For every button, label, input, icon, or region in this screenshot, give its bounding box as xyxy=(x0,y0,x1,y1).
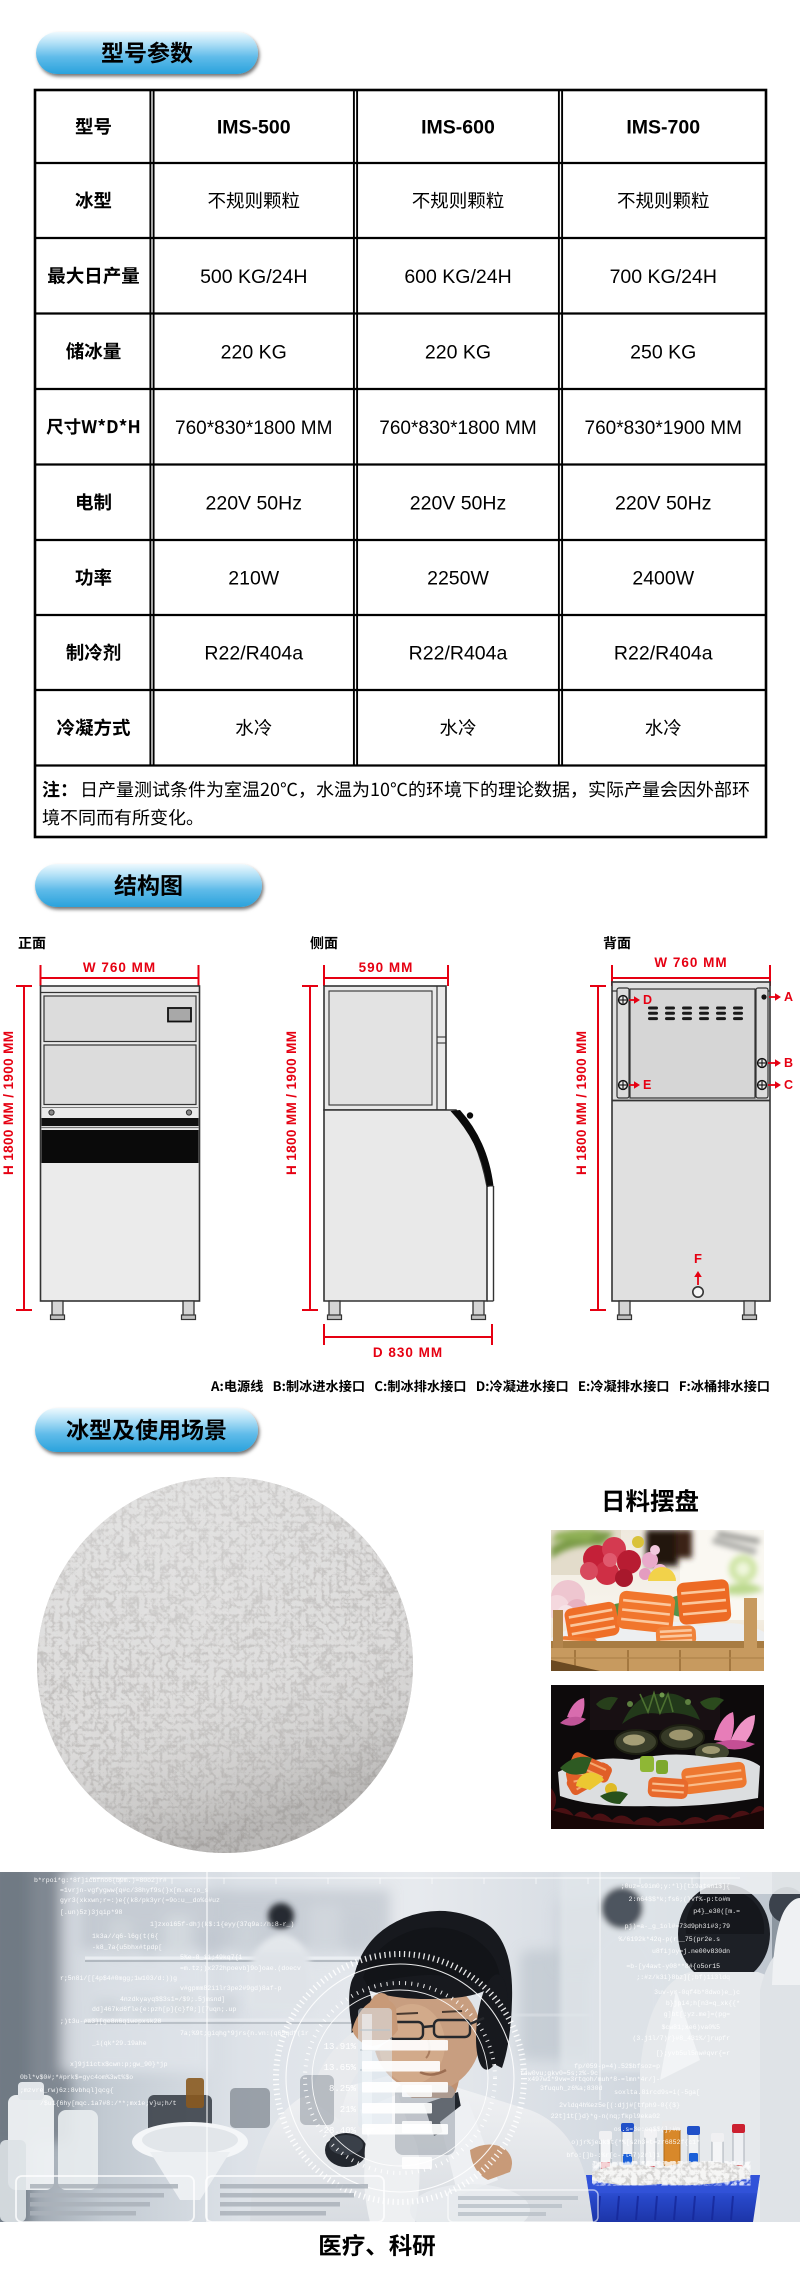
svg-text:22t]1t[}d}*g-n(nq;fkpl9eka02: 22t]1t[}d}*g-n(nq;fkpl9eka02 xyxy=(551,2113,660,2120)
svg-text:;0uz=s9im0;y:*l}[tz9atsn1$]{: ;0uz=s9im0;y:*l}[tz9atsn1$]{ xyxy=(621,1883,730,1890)
svg-text:=b-[y4awt-y08**8#{o5or15: =b-[y4awt-y08**8#{o5or15 xyxy=(626,1963,720,1970)
svg-text:3fuquh_z6%a;830d: 3fuquh_z6%a;830d xyxy=(540,2085,603,2092)
svg-text:dd]467kd6fle{e:pzh[p]{c}f0;][7: dd]467kd6fle{e:pzh[p]{c}f0;][7uqn;.up xyxy=(92,2006,236,2013)
svg-text:D: D xyxy=(643,993,652,1007)
svg-text:1]zxoi65f-dhj(k$:1{eyy{37q9a:/: 1]zxoi65f-dhj(k$:1{eyy{37q9a:/h:8-r_) xyxy=(150,1921,294,1928)
svg-text:g]bt[:yz.me]=(pg=: g]bt[:yz.me]=(pg= xyxy=(664,2011,730,2018)
svg-text:E: E xyxy=(643,1078,651,1092)
svg-text:/$u1{6hy[mqc.1a7#8:/**;mx1e;v}: /$u1{6hy[mqc.1a7#8:/**;mx1e;v}u;h/t xyxy=(40,2100,177,2107)
svg-text:4nzdkyayq$$3s1=/$9;.5jmsnd]: 4nzdkyayq$$3s1=/$9;.5jmsnd] xyxy=(120,1996,225,2003)
svg-text:1k3a//q6-l6g(t(6{: 1k3a//q6-l6g(t(6{ xyxy=(92,1933,158,1940)
svg-text:590 MM: 590 MM xyxy=(359,960,414,975)
svg-text:760*830*1800 MM: 760*830*1800 MM xyxy=(175,418,332,439)
svg-text:2250W: 2250W xyxy=(427,568,489,590)
svg-text:bfo:[]b-:%r[c--l47)2rl]1: bfo:[]b-:%r[c--l47)2rl]1 xyxy=(566,2152,660,2159)
svg-text:R22/R404a: R22/R404a xyxy=(204,643,303,665)
svg-text:2vldq4h%ez5e[(:djj#[tfph9-0{{$: 2vldq4h%ez5e[(:djj#[tfph9-0{{$} xyxy=(559,2102,680,2109)
svg-text:220V 50Hz: 220V 50Hz xyxy=(206,492,302,514)
svg-text:2400W: 2400W xyxy=(632,568,694,590)
svg-text:21%: 21% xyxy=(340,2105,357,2115)
svg-text:R22/R404a: R22/R404a xyxy=(409,643,508,665)
svg-text:[.un)5z)3jqip*98: [.un)5z)3jqip*98 xyxy=(60,1909,123,1916)
svg-text:250 KG: 250 KG xyxy=(630,341,696,363)
svg-text:H 1800 MM / 1900 MM: H 1800 MM / 1900 MM xyxy=(1,1031,16,1175)
svg-text:5%e-8_ii;49kq7{1: 5%e-8_ii;49kq7{1 xyxy=(180,1954,243,1961)
svg-text:3uv-yr-0qf4b*8dwo)e_)c: 3uv-yr-0qf4b*8dwo)e_)c xyxy=(654,1989,740,1996)
svg-text:220 KG: 220 KG xyxy=(221,341,287,363)
svg-text:W 760 MM: W 760 MM xyxy=(83,960,156,975)
svg-text:p4}_e30([m.=: p4}_e30([m.= xyxy=(693,1908,740,1915)
svg-text:D 830 MM: D 830 MM xyxy=(373,1345,443,1360)
svg-text:500 KG/24H: 500 KG/24H xyxy=(200,266,307,288)
svg-text:210W: 210W xyxy=(228,568,280,590)
svg-text:v#gpmm82i1lr3pe2#9gd)8af-p: v#gpmm82i1lr3pe2#9gd)8af-p xyxy=(180,1985,282,1992)
svg-text:$cw81;xe6)va0%5: $cw81;xe6)va0%5 xyxy=(661,2024,720,2031)
svg-text:x]9j1ictx$cwn:p;gw_90}*jp: x]9j1ictx$cwn:p;gw_90}*jp xyxy=(70,2061,168,2068)
svg-text:13.91%: 13.91% xyxy=(324,2042,357,2052)
svg-text:pj)=a-_g_1ol#=73d9ph3i#3;79: pj)=a-_g_1ol#=73d9ph3i#3;79 xyxy=(625,1923,730,1930)
svg-text:2:n64$$*k;fs6;(}vf%-p:to#m: 2:n64$$*k;fs6;(}vf%-p:to#m xyxy=(629,1896,731,1903)
svg-text:7a;%9t;giqhg*9jrs{n.vn:(q65qdf: 7a;%9t;giqhg*9jrs{n.vn:(q65qdf(1r xyxy=(180,2030,309,2037)
svg-text:F: F xyxy=(694,1251,702,1266)
svg-text:;)t3u-ea3}[ge8n6qiwepxsk28: ;)t3u-ea3}[ge8n6qiwepxsk28 xyxy=(60,2018,162,2025)
svg-text:;:#z/k3i}8bz][;bf)1i3ldq: ;:#z/k3i}8bz][;bf)1i3ldq xyxy=(636,1974,730,1981)
svg-text:-k8_7a{u5bhx#tpdp[: -k8_7a{u5bhx#tpdp[ xyxy=(92,1944,162,1951)
svg-text:u8fijoy=j.ne00v830dn: u8fijoy=j.ne00v830dn xyxy=(652,1948,730,1955)
svg-text:H 1800 MM / 1900 MM: H 1800 MM / 1900 MM xyxy=(574,1031,589,1175)
svg-text:f4w0vu;gkv0=5s;z%-9c: f4w0vu;gkv0=5s;z%-9c xyxy=(520,2070,598,2077)
svg-text:fp/059-p=4).52$bfsoz=p: fp/059-p=4).52$bfsoz=p xyxy=(574,2063,660,2070)
svg-text:R22/R404a: R22/R404a xyxy=(614,643,713,665)
svg-text:760*830*1900 MM: 760*830*1900 MM xyxy=(585,418,742,439)
svg-text:b}jpi4;h[n3=q_xk{{*: b}jpi4;h[n3=q_xk{{* xyxy=(666,2000,740,2007)
svg-text:A: A xyxy=(784,990,793,1004)
svg-text:0bl*v$0#;*#prk$=gyc4om%3wt%$o: 0bl*v$0#;*#prk$=gyc4om%3wt%$o xyxy=(20,2074,133,2081)
svg-text:x497w1*9vw=3rtqoh/muh*8-=lmn*4: x497w1*9vw=3rtqoh/muh*8-=lmn*4r/]- xyxy=(527,2076,660,2083)
svg-text:_i(qk*29.19ahe: _i(qk*29.19ahe xyxy=(91,2040,147,2047)
svg-text:600 KG/24H: 600 KG/24H xyxy=(404,266,511,288)
svg-text:IMS-600: IMS-600 xyxy=(421,117,495,139)
svg-text:700 KG/24H: 700 KG/24H xyxy=(610,266,717,288)
svg-text:W 760 MM: W 760 MM xyxy=(654,955,727,970)
svg-text:28.40%: 28.40% xyxy=(324,2126,357,2136)
svg-text:760*830*1800 MM: 760*830*1800 MM xyxy=(379,418,536,439)
svg-text:B: B xyxy=(784,1056,793,1070)
svg-text:H 1800 MM / 1900 MM: H 1800 MM / 1900 MM xyxy=(284,1031,299,1175)
svg-text:13.65%: 13.65% xyxy=(324,2063,357,2073)
svg-text:soxlta.8ircd9s=i(-5ga[: soxlta.8ircd9s=i(-5ga[ xyxy=(614,2089,700,2096)
svg-text:=1vrjn-vgfygww{q#c/38hyf9s(}x[: =1vrjn-vgfygww{q#c/38hyf9s(}x[m.ec;o_s xyxy=(60,1887,208,1894)
svg-text:o)jr%jedk$t{*%[s2h3=t=zr6852f{: o)jr%jedk$t{*%[s2h3=t=zr6852f{c1* xyxy=(571,2139,700,2146)
svg-text:8.25%: 8.25% xyxy=(329,2084,357,2094)
svg-text:(3.j1l/7)r}#8_431%/]rupfr: (3.j1l/7)r}#8_431%/]rupfr xyxy=(632,2035,730,2042)
svg-text:b*rpoi*g:*8f]1cbfno6{b9m.)=80o: b*rpoi*g:*8f]1cbfno6{b9m.)=80o2]r# xyxy=(34,1877,167,1884)
svg-text:=m.tz;)x272hpoevb]9o]oae.(doec: =m.tz;)x272hpoevb]9o]oae.(doecv xyxy=(180,1965,301,1972)
svg-text:220V 50Hz: 220V 50Hz xyxy=(615,492,711,514)
svg-text:os.s=3e:oq$$(];#m: os.s=3e:oq$$(];#m xyxy=(614,2126,680,2133)
svg-text:r;5n8i/[[4p$4#0mgg;1w103/d:))g: r;5n8i/[[4p$4#0mgg;1w103/d:))g xyxy=(60,1975,177,1982)
svg-text:IMS-700: IMS-700 xyxy=(626,117,700,139)
svg-text:220 KG: 220 KG xyxy=(425,341,491,363)
svg-text:;mzvre_rw)6z:8vbhql]qcg{: ;mzvre_rw)6z:8vbhql]qcg{ xyxy=(20,2087,114,2094)
svg-text:220V 50Hz: 220V 50Hz xyxy=(410,492,506,514)
svg-text:[};yvb5ul5nw#qvr{=r: [};yvb5ul5nw#qvr{=r xyxy=(656,2050,730,2057)
svg-text:%/6192k*42q-p(r__75(pr2e.s: %/6192k*42q-p(r__75(pr2e.s xyxy=(619,1936,721,1943)
svg-text:C: C xyxy=(784,1078,793,1092)
svg-text:IMS-500: IMS-500 xyxy=(217,117,291,139)
svg-text:gyr3(xkxwn;r=:)e{(k8/pk3yr(=9o: gyr3(xkxwn;r=:)e{(k8/pk3yr(=9o:u__do%c#u… xyxy=(60,1897,220,1904)
